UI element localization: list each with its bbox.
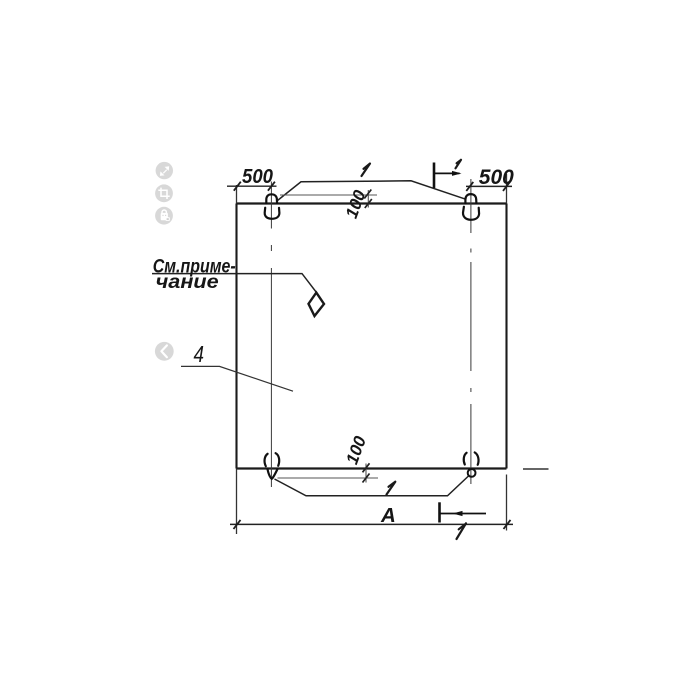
svg-text:4: 4 bbox=[194, 341, 205, 367]
svg-text:100: 100 bbox=[342, 187, 370, 221]
svg-text:500: 500 bbox=[479, 166, 514, 189]
svg-text:100: 100 bbox=[342, 433, 370, 467]
svg-text:А: А bbox=[380, 504, 396, 527]
svg-text:500: 500 bbox=[242, 165, 274, 188]
svg-text:чание: чание bbox=[156, 271, 219, 293]
